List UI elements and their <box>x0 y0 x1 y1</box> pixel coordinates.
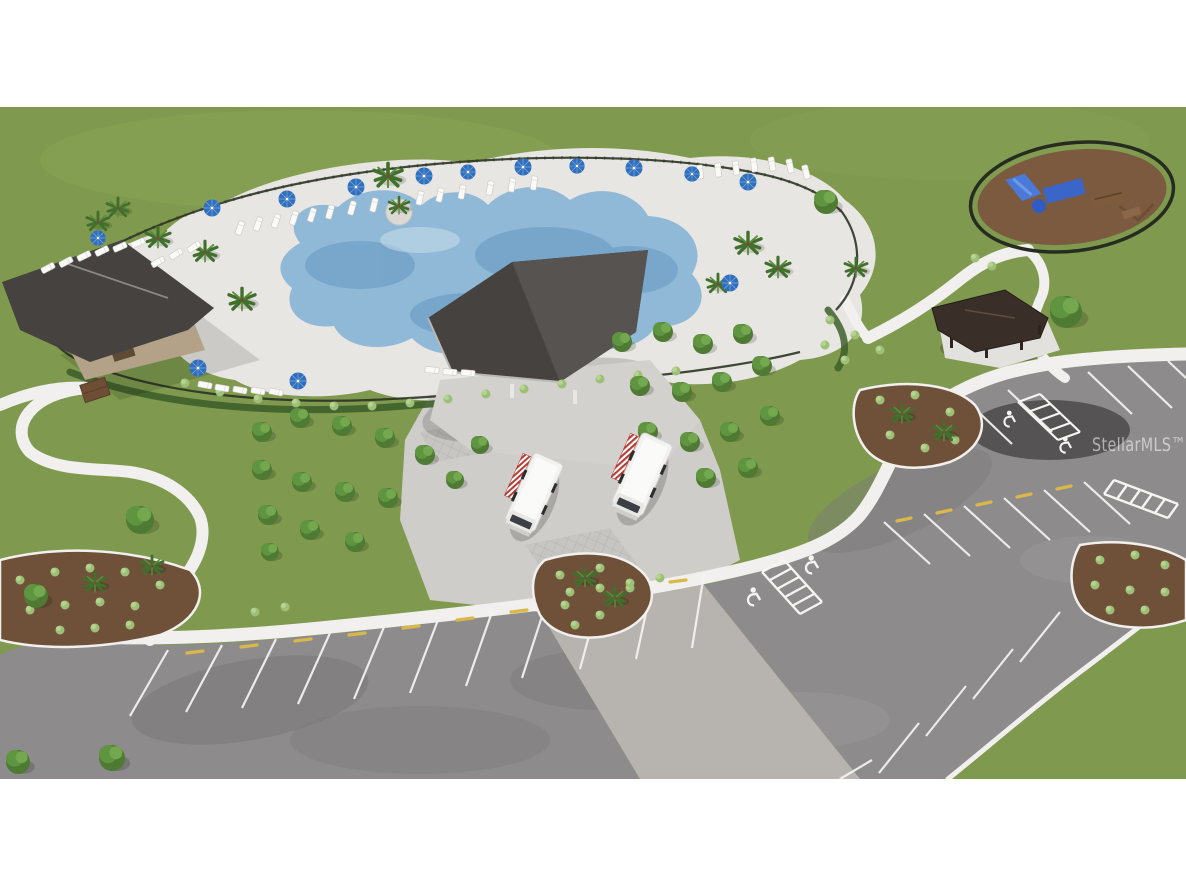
island-teardrop <box>533 553 652 637</box>
aerial-rendering: StellarMLS™ <box>0 0 1186 889</box>
island-right-bed <box>1072 542 1186 627</box>
listing-photo: StellarMLS™ <box>0 0 1186 889</box>
stellar-mls-watermark: StellarMLS™ <box>1092 434 1186 456</box>
rendered-scene: StellarMLS™ <box>0 100 1186 779</box>
